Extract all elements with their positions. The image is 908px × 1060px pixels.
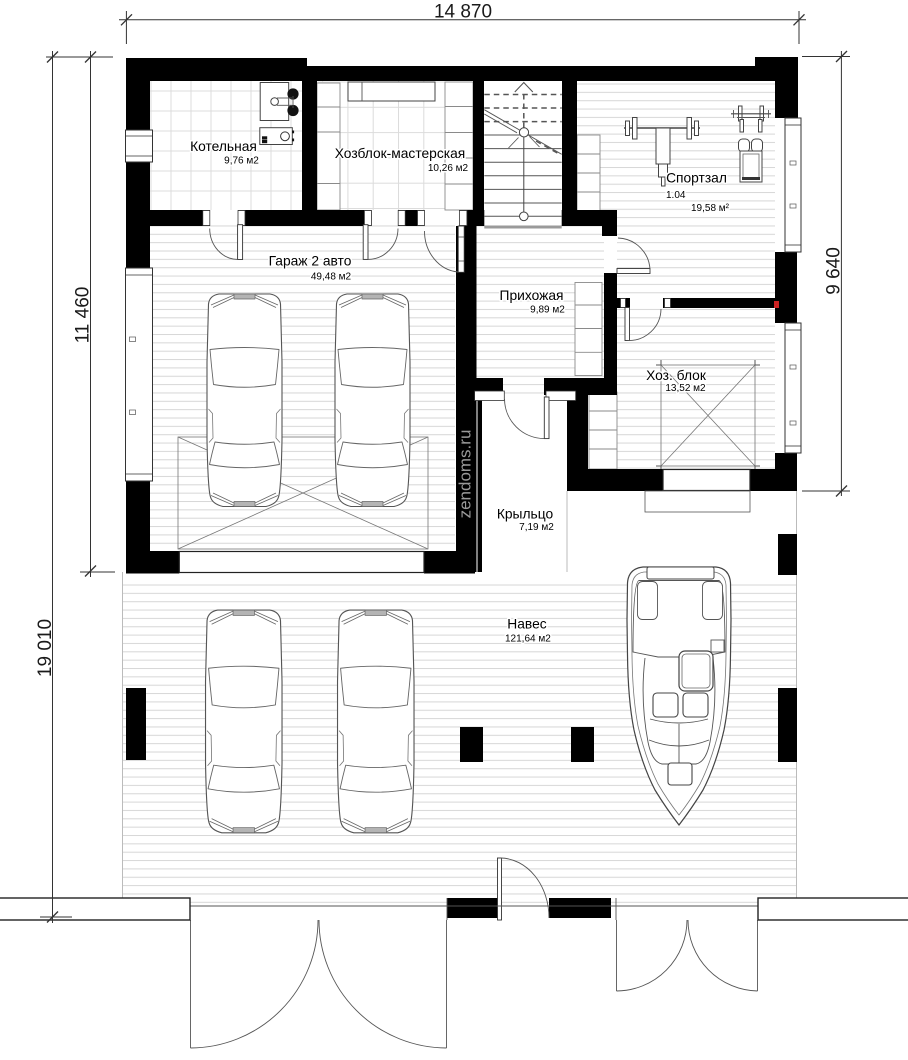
svg-text:9,76 м2: 9,76 м2: [224, 156, 259, 167]
svg-text:19,58 м²: 19,58 м²: [691, 203, 730, 214]
svg-text:10,26 м2: 10,26 м2: [428, 163, 469, 174]
svg-text:9,89 м2: 9,89 м2: [530, 305, 565, 316]
svg-text:zendoms.ru: zendoms.ru: [456, 430, 475, 519]
svg-text:Хозблок-мастерская: Хозблок-мастерская: [335, 146, 465, 161]
svg-text:7,19 м2: 7,19 м2: [519, 522, 554, 533]
svg-text:121,64 м2: 121,64 м2: [505, 634, 551, 645]
svg-text:19 010: 19 010: [35, 619, 56, 677]
svg-text:1.04: 1.04: [666, 190, 686, 201]
svg-text:Крыльцо: Крыльцо: [497, 507, 554, 522]
svg-text:Спортзал: Спортзал: [666, 171, 727, 186]
svg-text:Навес: Навес: [507, 617, 546, 632]
svg-text:13,52 м2: 13,52 м2: [665, 383, 706, 394]
svg-text:9 640: 9 640: [824, 247, 845, 295]
svg-text:Гараж 2 авто: Гараж 2 авто: [269, 254, 352, 269]
svg-text:11 460: 11 460: [73, 287, 94, 344]
svg-text:Котельная: Котельная: [190, 139, 257, 154]
svg-text:14 870: 14 870: [434, 2, 492, 23]
svg-text:Хоз. блок: Хоз. блок: [646, 368, 707, 383]
svg-text:Прихожая: Прихожая: [500, 288, 564, 303]
svg-text:49,48 м2: 49,48 м2: [311, 272, 352, 283]
